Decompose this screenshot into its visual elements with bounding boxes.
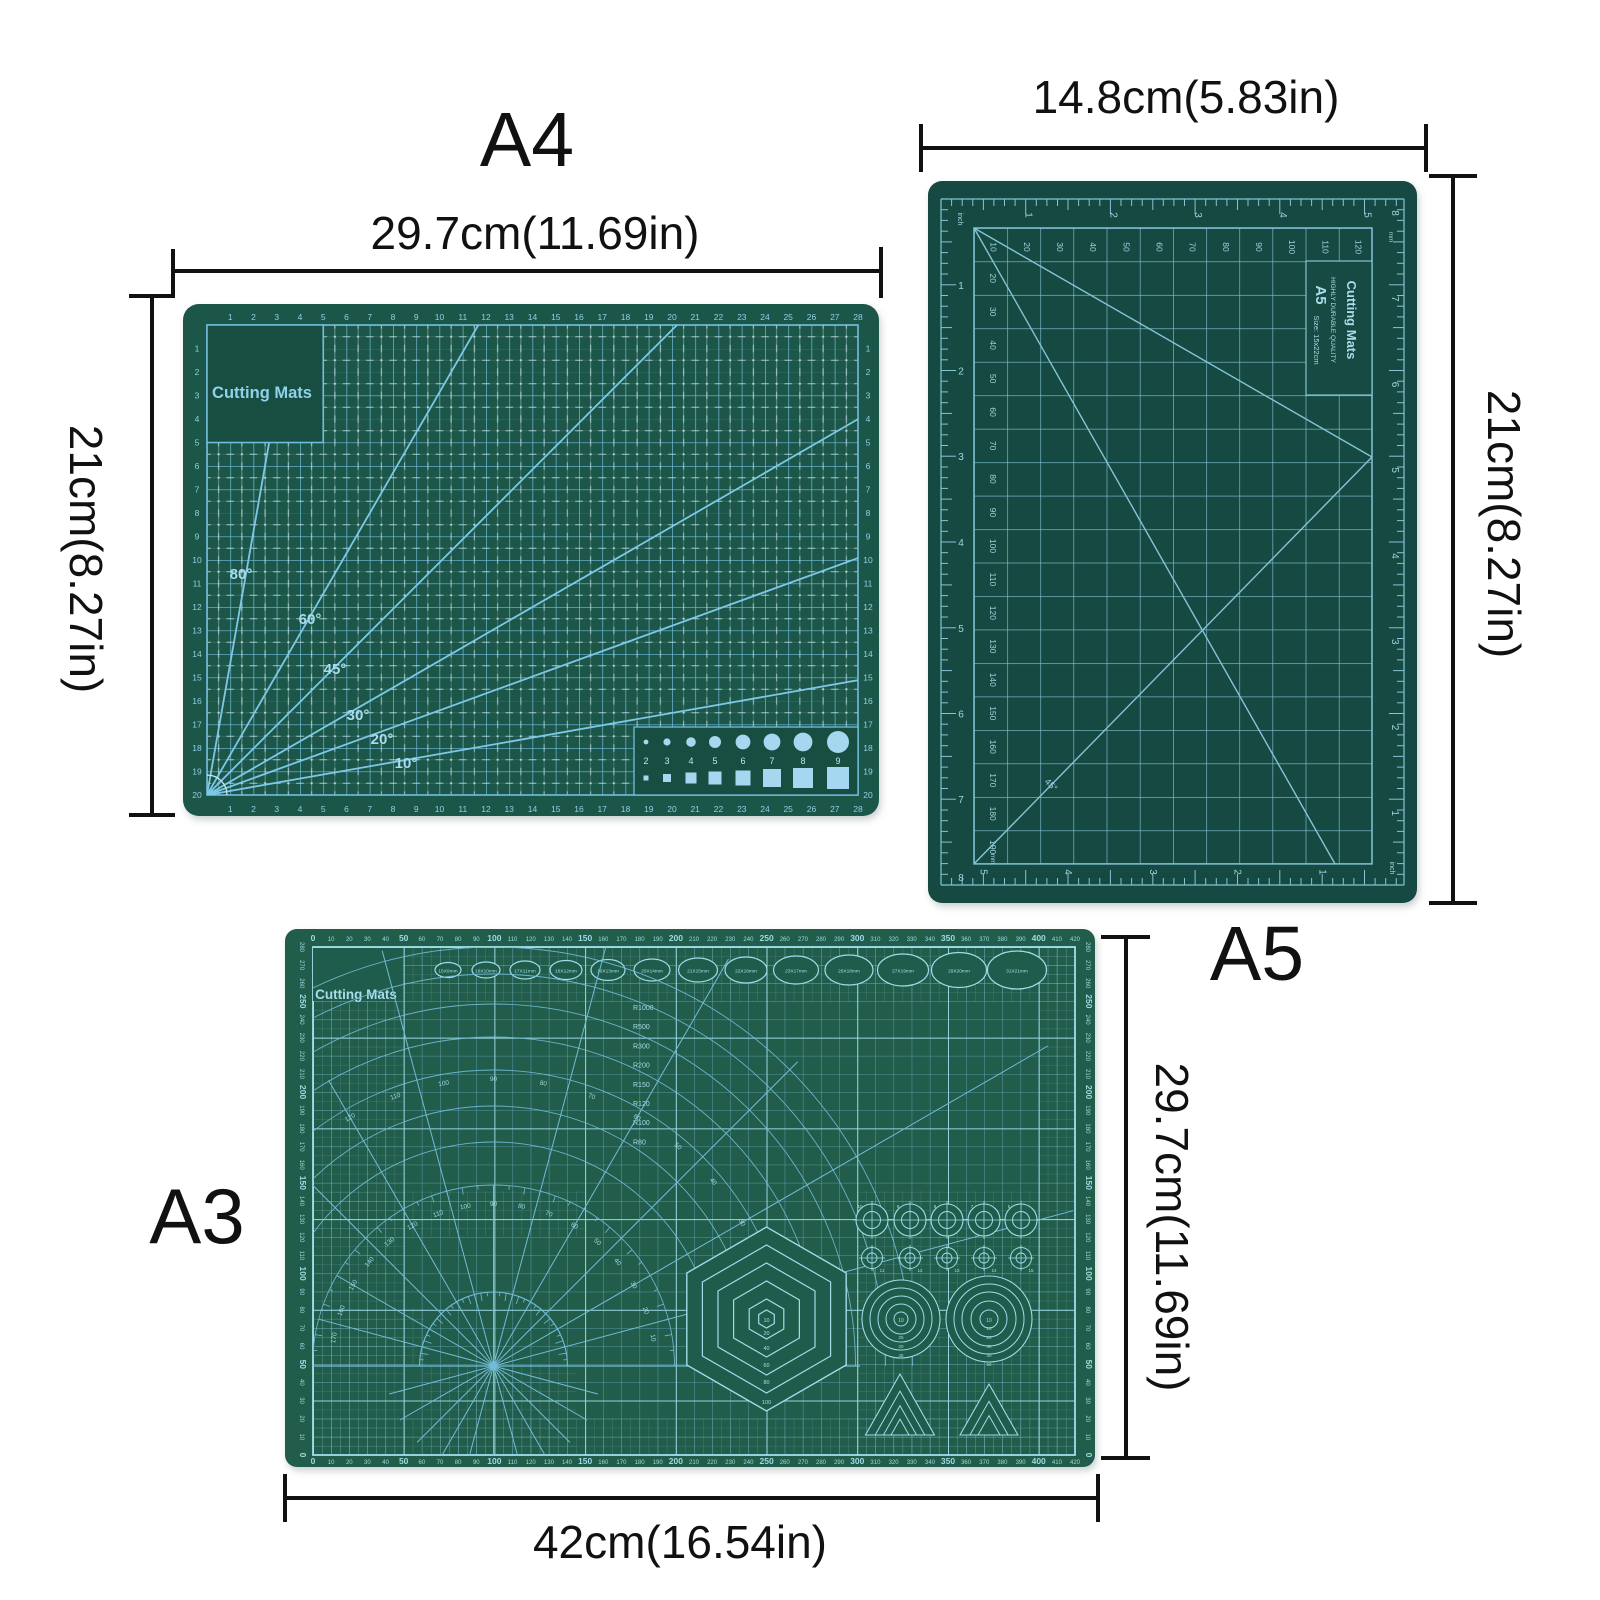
svg-text:7: 7 (958, 795, 964, 806)
svg-text:2: 2 (643, 756, 648, 766)
svg-text:5: 5 (978, 869, 989, 875)
svg-text:90: 90 (988, 508, 998, 518)
svg-text:27X19mm: 27X19mm (892, 968, 914, 974)
svg-text:14.8cm(5.83in): 14.8cm(5.83in) (1033, 71, 1340, 123)
svg-text:110: 110 (508, 1460, 518, 1466)
svg-text:220: 220 (707, 1460, 718, 1466)
svg-text:60: 60 (988, 407, 998, 417)
svg-text:7: 7 (866, 485, 871, 495)
svg-text:19: 19 (192, 767, 202, 777)
svg-text:4: 4 (1277, 212, 1288, 218)
svg-text:16: 16 (574, 312, 584, 322)
svg-text:260: 260 (1084, 978, 1090, 989)
svg-text:0: 0 (298, 1453, 308, 1458)
svg-text:270: 270 (1084, 960, 1090, 971)
svg-text:20: 20 (346, 1460, 353, 1466)
svg-text:250: 250 (298, 994, 308, 1008)
svg-text:50: 50 (1084, 1360, 1094, 1370)
svg-text:11: 11 (458, 312, 467, 322)
svg-text:40: 40 (382, 1460, 389, 1466)
svg-text:20: 20 (1084, 1415, 1090, 1422)
svg-text:19: 19 (644, 312, 654, 322)
svg-text:330: 330 (907, 937, 918, 943)
svg-text:60: 60 (1154, 242, 1164, 252)
svg-text:30: 30 (1055, 242, 1065, 252)
svg-text:170: 170 (616, 1460, 627, 1466)
svg-text:130: 130 (544, 937, 555, 943)
svg-text:30°: 30° (347, 707, 370, 724)
svg-text:180: 180 (635, 937, 646, 943)
svg-text:70: 70 (1188, 242, 1198, 252)
svg-text:140: 140 (562, 937, 573, 943)
svg-text:15: 15 (1028, 1268, 1034, 1273)
svg-text:18: 18 (863, 743, 873, 753)
svg-text:12: 12 (917, 1268, 923, 1273)
svg-text:21X15mm: 21X15mm (687, 968, 709, 974)
svg-text:1: 1 (195, 344, 200, 354)
svg-text:1: 1 (1023, 212, 1034, 218)
svg-text:0: 0 (1084, 1453, 1094, 1458)
svg-text:5: 5 (866, 438, 871, 448)
svg-text:17: 17 (863, 720, 873, 730)
svg-text:20: 20 (667, 312, 677, 322)
svg-text:280: 280 (1084, 942, 1090, 953)
svg-text:25: 25 (783, 312, 793, 322)
svg-text:HIGHLY DURABLE QUALITY: HIGHLY DURABLE QUALITY (1329, 277, 1336, 363)
svg-text:2: 2 (958, 367, 964, 378)
svg-text:80: 80 (455, 1460, 462, 1466)
svg-text:140: 140 (562, 1460, 573, 1466)
svg-text:19: 19 (863, 767, 873, 777)
svg-text:40: 40 (986, 1353, 992, 1358)
svg-text:90: 90 (1084, 1288, 1090, 1295)
svg-text:8: 8 (195, 508, 200, 518)
svg-text:23: 23 (737, 804, 747, 814)
svg-text:50: 50 (298, 1360, 308, 1370)
svg-text:4: 4 (958, 538, 964, 549)
svg-text:150: 150 (578, 1456, 592, 1466)
svg-text:13: 13 (863, 626, 873, 636)
svg-text:42cm(16.54in): 42cm(16.54in) (533, 1516, 827, 1568)
svg-text:8: 8 (391, 312, 396, 322)
svg-text:170: 170 (988, 773, 998, 787)
svg-text:18: 18 (621, 312, 631, 322)
svg-text:16: 16 (192, 696, 202, 706)
svg-text:11: 11 (880, 1268, 885, 1273)
svg-text:220: 220 (707, 937, 718, 943)
svg-text:30: 30 (988, 307, 998, 317)
svg-text:350: 350 (941, 1456, 955, 1466)
svg-text:3: 3 (1147, 869, 1158, 875)
svg-text:300: 300 (850, 933, 864, 943)
svg-text:10: 10 (863, 555, 873, 565)
svg-text:310: 310 (870, 937, 881, 943)
svg-text:A4: A4 (480, 97, 574, 183)
svg-text:200: 200 (298, 1085, 308, 1099)
svg-text:8: 8 (800, 756, 805, 766)
svg-text:5: 5 (958, 624, 964, 635)
svg-text:390: 390 (1016, 1460, 1027, 1466)
svg-text:26: 26 (807, 804, 817, 814)
svg-text:200: 200 (669, 933, 683, 943)
svg-text:15X9mm: 15X9mm (438, 968, 457, 974)
svg-text:60: 60 (763, 1363, 769, 1369)
svg-text:130: 130 (1084, 1214, 1090, 1225)
svg-text:3: 3 (195, 391, 200, 401)
svg-text:7: 7 (1389, 296, 1400, 302)
svg-text:20: 20 (1022, 242, 1032, 252)
svg-text:6: 6 (740, 756, 745, 766)
svg-text:190: 190 (1084, 1105, 1090, 1116)
svg-text:0: 0 (311, 1456, 316, 1466)
svg-text:270: 270 (798, 1460, 809, 1466)
svg-text:13: 13 (504, 312, 514, 322)
svg-text:45: 45 (898, 1353, 904, 1358)
svg-text:11: 11 (458, 804, 467, 814)
svg-text:21cm(8.27in): 21cm(8.27in) (60, 425, 112, 693)
svg-text:130: 130 (544, 1460, 555, 1466)
svg-text:17: 17 (192, 720, 202, 730)
svg-text:10: 10 (328, 1460, 335, 1466)
svg-text:5: 5 (321, 312, 326, 322)
svg-text:3: 3 (1192, 212, 1203, 218)
svg-text:21: 21 (690, 804, 700, 814)
svg-text:130: 130 (298, 1214, 304, 1225)
svg-text:70: 70 (1084, 1325, 1090, 1332)
svg-text:400: 400 (1032, 1456, 1046, 1466)
svg-text:9: 9 (835, 756, 840, 766)
svg-text:R120: R120 (633, 1101, 650, 1108)
svg-text:50: 50 (399, 1456, 409, 1466)
svg-text:340: 340 (925, 1460, 936, 1466)
svg-text:280: 280 (298, 942, 304, 953)
svg-text:4: 4 (688, 756, 693, 766)
svg-text:5: 5 (321, 804, 326, 814)
svg-text:90: 90 (1254, 242, 1264, 252)
svg-text:110: 110 (988, 573, 998, 587)
svg-text:230: 230 (725, 937, 736, 943)
svg-text:19: 19 (644, 804, 654, 814)
svg-text:240: 240 (743, 1460, 754, 1466)
svg-text:24: 24 (760, 312, 770, 322)
svg-text:mm: mm (1387, 232, 1394, 243)
svg-text:190: 190 (653, 1460, 664, 1466)
svg-text:190: 190 (653, 937, 664, 943)
svg-text:8: 8 (958, 873, 964, 884)
svg-text:420: 420 (1070, 937, 1081, 943)
svg-text:7: 7 (367, 804, 372, 814)
svg-text:14: 14 (528, 312, 538, 322)
svg-text:100: 100 (762, 1400, 771, 1406)
svg-text:10: 10 (986, 1318, 992, 1324)
svg-text:20: 20 (863, 790, 873, 800)
svg-text:R200: R200 (633, 1063, 650, 1070)
svg-text:14: 14 (991, 1268, 997, 1273)
svg-text:150: 150 (298, 1176, 308, 1190)
svg-text:110: 110 (1320, 240, 1330, 254)
svg-text:80: 80 (763, 1380, 769, 1386)
svg-text:22: 22 (714, 312, 724, 322)
svg-text:28: 28 (853, 804, 863, 814)
svg-text:120: 120 (526, 1460, 537, 1466)
svg-text:210: 210 (689, 937, 700, 943)
svg-text:80: 80 (1221, 242, 1231, 252)
svg-text:10: 10 (192, 555, 202, 565)
svg-text:31X21mm: 31X21mm (1006, 968, 1028, 974)
svg-text:9: 9 (866, 532, 871, 542)
svg-text:180: 180 (988, 807, 998, 821)
svg-text:12: 12 (481, 312, 491, 322)
svg-text:15: 15 (863, 673, 873, 683)
svg-text:4: 4 (866, 414, 871, 424)
svg-text:14: 14 (528, 804, 538, 814)
svg-text:11: 11 (193, 579, 202, 589)
svg-text:410: 410 (1052, 1460, 1063, 1466)
svg-text:24: 24 (760, 804, 770, 814)
svg-text:120: 120 (298, 1232, 304, 1243)
svg-text:7: 7 (195, 485, 200, 495)
svg-text:2: 2 (251, 804, 256, 814)
svg-text:20: 20 (192, 790, 202, 800)
svg-text:260: 260 (298, 978, 304, 989)
svg-text:26: 26 (807, 312, 817, 322)
svg-text:16: 16 (863, 696, 873, 706)
svg-text:50: 50 (986, 1362, 992, 1367)
svg-text:25: 25 (898, 1335, 904, 1340)
svg-text:50: 50 (1121, 242, 1131, 252)
svg-text:4: 4 (1389, 553, 1400, 559)
svg-text:380: 380 (997, 1460, 1008, 1466)
svg-text:1: 1 (866, 344, 871, 354)
svg-text:6: 6 (344, 804, 349, 814)
svg-text:1: 1 (1389, 810, 1400, 816)
svg-text:80: 80 (988, 474, 998, 484)
svg-text:6: 6 (866, 461, 871, 471)
svg-text:9: 9 (195, 532, 200, 542)
svg-text:230: 230 (1084, 1033, 1090, 1044)
svg-text:17: 17 (597, 804, 607, 814)
svg-text:3: 3 (274, 804, 279, 814)
svg-text:20: 20 (667, 804, 677, 814)
svg-text:2: 2 (1389, 725, 1400, 731)
svg-text:20: 20 (346, 937, 353, 943)
svg-text:60: 60 (1084, 1343, 1090, 1350)
svg-text:120: 120 (526, 937, 537, 943)
svg-text:160: 160 (298, 1160, 304, 1171)
svg-text:350: 350 (941, 933, 955, 943)
svg-text:22: 22 (714, 804, 724, 814)
svg-text:40: 40 (298, 1379, 304, 1386)
svg-text:90: 90 (473, 1460, 480, 1466)
svg-text:7: 7 (769, 756, 774, 766)
svg-text:380: 380 (997, 937, 1008, 943)
svg-text:320: 320 (889, 1460, 900, 1466)
svg-text:30: 30 (986, 1344, 992, 1349)
svg-text:21cm(8.27in): 21cm(8.27in) (1478, 390, 1530, 658)
svg-text:0: 0 (311, 933, 316, 943)
svg-text:400: 400 (1032, 933, 1046, 943)
svg-text:6: 6 (344, 312, 349, 322)
svg-text:120: 120 (1084, 1232, 1090, 1243)
svg-text:100: 100 (1084, 1267, 1094, 1281)
svg-text:270: 270 (798, 937, 809, 943)
svg-text:21: 21 (690, 312, 700, 322)
svg-text:3: 3 (664, 756, 669, 766)
svg-text:3: 3 (274, 312, 279, 322)
svg-text:8: 8 (1389, 210, 1400, 216)
svg-text:230: 230 (725, 1460, 736, 1466)
svg-text:60: 60 (419, 937, 426, 943)
svg-text:16: 16 (574, 804, 584, 814)
svg-text:100: 100 (1287, 240, 1297, 254)
svg-text:250: 250 (1084, 994, 1094, 1008)
svg-text:100: 100 (487, 933, 501, 943)
svg-text:90: 90 (490, 1076, 498, 1083)
svg-text:210: 210 (1084, 1069, 1090, 1080)
svg-text:4: 4 (298, 312, 303, 322)
svg-text:150: 150 (578, 933, 592, 943)
svg-text:40: 40 (1088, 242, 1098, 252)
svg-text:14: 14 (192, 649, 202, 659)
svg-text:6: 6 (1389, 382, 1400, 388)
svg-text:370: 370 (979, 937, 990, 943)
svg-text:120: 120 (1354, 240, 1364, 254)
svg-text:90: 90 (298, 1288, 304, 1295)
svg-text:27: 27 (830, 804, 840, 814)
svg-text:200: 200 (669, 1456, 683, 1466)
svg-text:13: 13 (504, 804, 514, 814)
svg-text:inch: inch (1388, 862, 1395, 875)
svg-text:230: 230 (298, 1033, 304, 1044)
svg-text:250: 250 (760, 1456, 774, 1466)
svg-text:14: 14 (863, 649, 873, 659)
svg-text:240: 240 (298, 1015, 304, 1026)
svg-text:220: 220 (298, 1051, 304, 1062)
svg-text:100: 100 (988, 539, 998, 553)
svg-text:Size: 15x22cm: Size: 15x22cm (1312, 315, 1321, 364)
svg-text:30: 30 (1084, 1397, 1090, 1404)
svg-text:150: 150 (1084, 1176, 1094, 1190)
svg-text:27: 27 (830, 312, 840, 322)
svg-text:10: 10 (898, 1318, 904, 1324)
svg-text:160: 160 (1084, 1160, 1090, 1171)
svg-text:26X18mm: 26X18mm (838, 968, 860, 974)
svg-text:210: 210 (689, 1460, 700, 1466)
svg-text:12: 12 (481, 804, 491, 814)
svg-text:12: 12 (192, 602, 202, 612)
svg-text:40: 40 (1084, 1379, 1090, 1386)
svg-text:1: 1 (958, 281, 964, 292)
svg-text:3: 3 (866, 391, 871, 401)
svg-text:18X12mm: 18X12mm (555, 968, 577, 974)
svg-text:70: 70 (298, 1325, 304, 1332)
svg-text:9: 9 (414, 312, 419, 322)
svg-text:A5: A5 (1210, 911, 1304, 997)
svg-text:23X17mm: 23X17mm (785, 968, 807, 974)
svg-text:300: 300 (850, 1456, 864, 1466)
svg-text:360: 360 (961, 937, 972, 943)
svg-text:160: 160 (598, 937, 609, 943)
svg-text:10: 10 (1084, 1434, 1090, 1441)
svg-text:20X14mm: 20X14mm (641, 968, 663, 974)
svg-text:180: 180 (298, 1123, 304, 1134)
svg-text:2: 2 (251, 312, 256, 322)
svg-text:50: 50 (399, 933, 409, 943)
svg-text:1: 1 (228, 312, 233, 322)
svg-text:5: 5 (1362, 212, 1373, 218)
svg-text:R1000: R1000 (633, 1005, 654, 1012)
svg-text:2: 2 (1107, 212, 1118, 218)
svg-text:10: 10 (857, 1204, 863, 1209)
svg-text:5: 5 (712, 756, 717, 766)
svg-text:inch: inch (956, 213, 963, 226)
svg-text:170: 170 (1084, 1142, 1090, 1153)
svg-text:18: 18 (621, 804, 631, 814)
svg-text:1: 1 (1316, 869, 1327, 875)
svg-text:R80: R80 (633, 1139, 646, 1146)
svg-text:130: 130 (988, 639, 998, 653)
svg-text:390: 390 (1016, 937, 1027, 943)
svg-text:50: 50 (988, 374, 998, 384)
svg-text:180: 180 (1084, 1123, 1090, 1134)
svg-text:mm: mm (989, 854, 995, 864)
svg-text:9: 9 (414, 804, 419, 814)
svg-text:R500: R500 (633, 1024, 650, 1031)
svg-text:3: 3 (958, 452, 964, 463)
svg-text:29.7cm(11.69in): 29.7cm(11.69in) (371, 207, 700, 259)
svg-text:330: 330 (907, 1460, 918, 1466)
svg-text:290: 290 (834, 1460, 845, 1466)
svg-text:4: 4 (195, 414, 200, 424)
svg-text:10: 10 (435, 804, 445, 814)
svg-text:170: 170 (298, 1142, 304, 1153)
svg-text:110: 110 (1084, 1251, 1090, 1261)
svg-text:10: 10 (763, 1318, 769, 1324)
svg-text:140: 140 (298, 1196, 304, 1207)
svg-text:10°: 10° (395, 755, 418, 772)
svg-text:29.7cm(11.69in): 29.7cm(11.69in) (1146, 1063, 1198, 1392)
svg-text:30: 30 (298, 1397, 304, 1404)
svg-text:A5: A5 (1312, 285, 1329, 304)
svg-text:90: 90 (473, 937, 480, 943)
svg-text:20°: 20° (371, 731, 394, 748)
svg-text:40: 40 (382, 937, 389, 943)
svg-text:25: 25 (783, 804, 793, 814)
svg-text:A3: A3 (149, 1172, 244, 1260)
svg-text:20: 20 (298, 1415, 304, 1422)
svg-text:10: 10 (435, 312, 445, 322)
svg-text:190: 190 (298, 1105, 304, 1116)
svg-text:160: 160 (988, 740, 998, 754)
svg-text:410: 410 (1052, 937, 1063, 943)
svg-text:4: 4 (1062, 869, 1073, 875)
svg-text:5: 5 (1389, 467, 1400, 473)
svg-text:70: 70 (437, 1460, 444, 1466)
svg-text:R300: R300 (633, 1043, 650, 1050)
svg-text:310: 310 (870, 1460, 881, 1466)
svg-text:Cutting Mats: Cutting Mats (212, 384, 312, 402)
svg-text:20: 20 (988, 273, 998, 283)
svg-text:60: 60 (419, 1460, 426, 1466)
svg-text:22X16mm: 22X16mm (735, 968, 757, 974)
svg-text:45°: 45° (324, 661, 347, 678)
svg-text:29X20mm: 29X20mm (948, 968, 970, 974)
svg-text:15: 15 (551, 804, 561, 814)
svg-text:260: 260 (780, 1460, 791, 1466)
svg-text:1: 1 (228, 804, 233, 814)
svg-text:360: 360 (961, 1460, 972, 1466)
svg-text:13: 13 (954, 1268, 960, 1273)
